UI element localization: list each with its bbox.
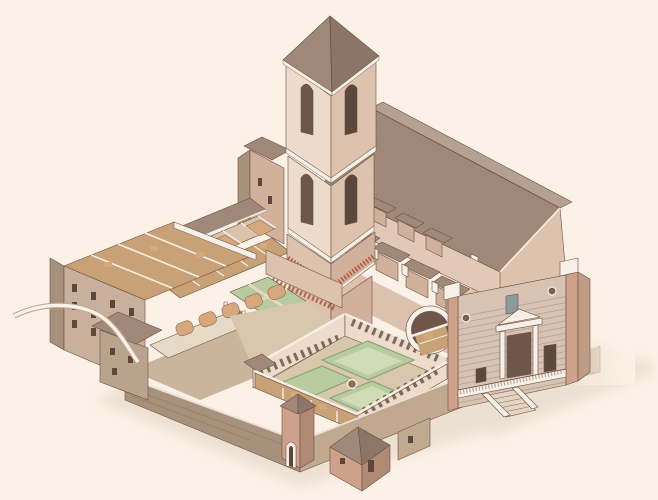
west-range-window xyxy=(258,178,262,186)
portal-door xyxy=(507,332,531,378)
left-oculus xyxy=(462,314,470,322)
illustration-canvas xyxy=(0,0,658,500)
facade-left-pilaster xyxy=(448,296,458,411)
axonometric-church-illustration xyxy=(0,0,658,500)
tower-lancet-window xyxy=(301,174,313,225)
west-range-window xyxy=(268,196,272,204)
facade-small-window xyxy=(476,367,486,383)
facade-side-door xyxy=(544,344,556,372)
facade-right-pilaster xyxy=(566,272,578,385)
cloister2-well xyxy=(348,380,357,389)
tower-lancet-window xyxy=(345,175,357,225)
wall-turret xyxy=(280,394,316,468)
tower-lancet-window xyxy=(301,84,313,135)
right-oculus xyxy=(548,287,556,295)
tower-lancet-window xyxy=(345,85,357,135)
facade-return-face xyxy=(578,272,590,381)
